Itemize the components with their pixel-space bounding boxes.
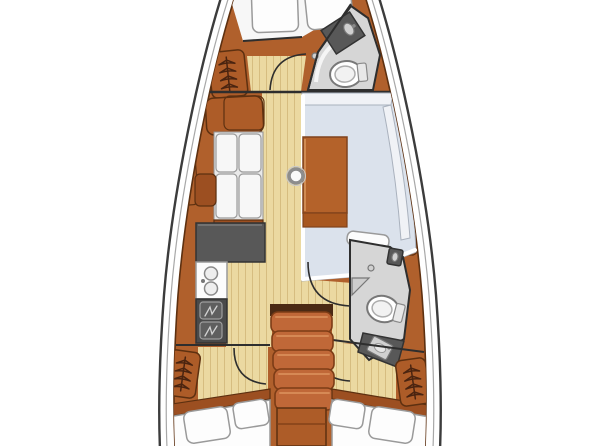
salon-table xyxy=(303,137,347,227)
dinette-backrest-forward xyxy=(302,93,393,105)
sink-bowl-icon xyxy=(205,282,218,295)
port-settee xyxy=(214,132,263,229)
salon-walkway-floor xyxy=(262,92,302,232)
faucet-icon xyxy=(201,279,205,283)
engine-box xyxy=(277,408,326,446)
floor-plan-svg xyxy=(0,0,600,446)
pillow xyxy=(328,399,366,430)
pillow xyxy=(368,406,416,444)
v-berth-pillow-left xyxy=(251,0,298,33)
table-leaf xyxy=(303,213,347,227)
stove-burner-icon xyxy=(200,322,222,339)
floor-left-of-stairs xyxy=(226,313,272,347)
pillow xyxy=(232,399,270,430)
aft-head-hand-sink xyxy=(387,248,404,266)
stove-burner-icon xyxy=(200,302,222,319)
pillow xyxy=(183,406,231,444)
mast-post-icon xyxy=(289,169,303,183)
companionway-stairs xyxy=(270,304,334,446)
port-side-shelf xyxy=(195,174,216,206)
sink-bowl-icon xyxy=(205,267,218,280)
drain-icon xyxy=(368,265,374,271)
galley-counter xyxy=(196,223,265,262)
sailboat-floor-plan xyxy=(0,0,600,446)
forward-cabin-floor xyxy=(247,56,306,92)
